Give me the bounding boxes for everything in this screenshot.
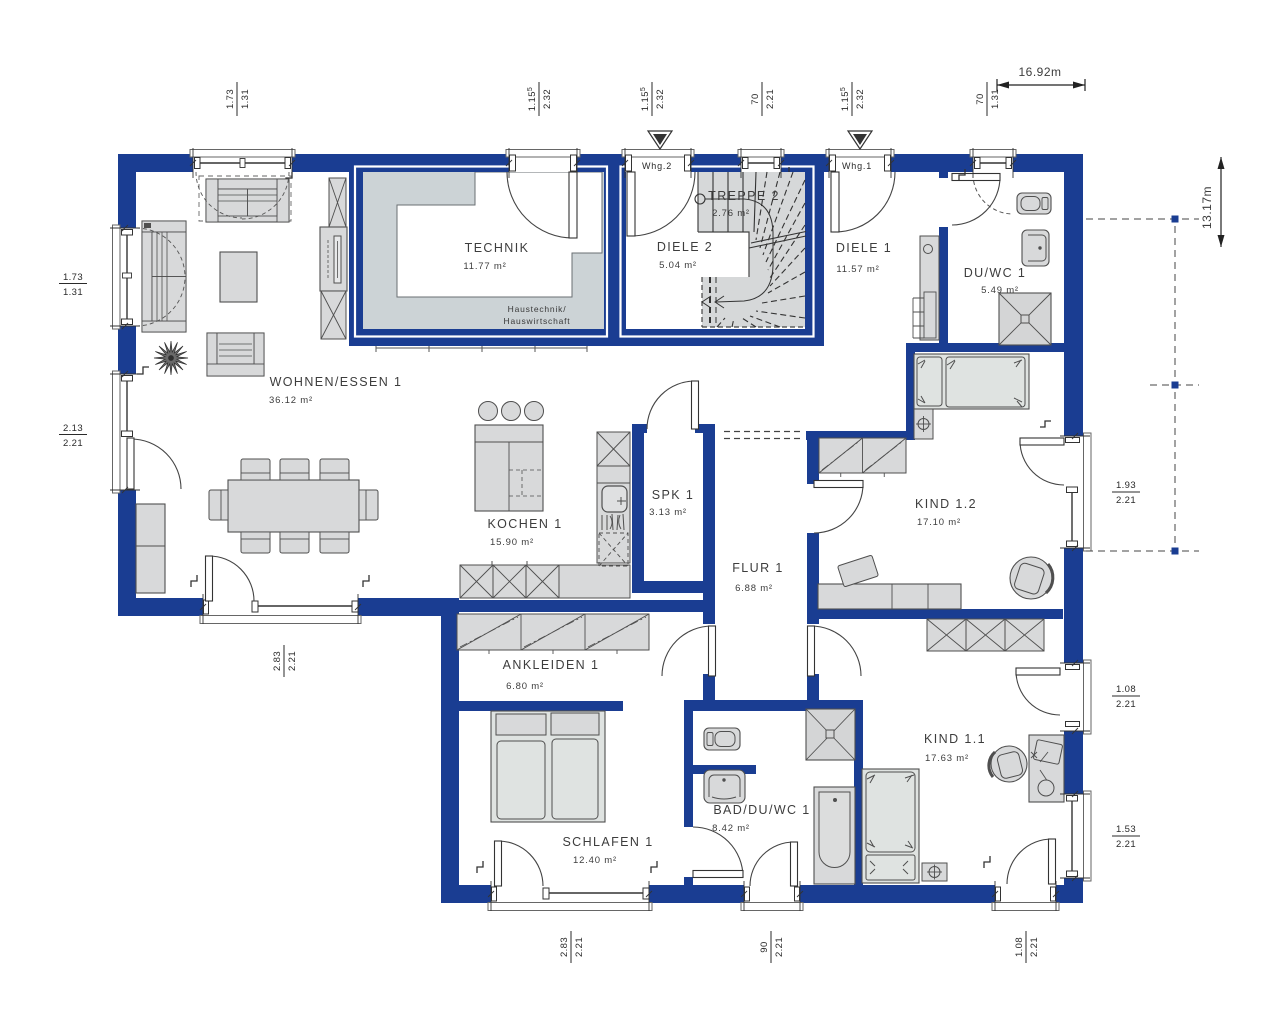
- svg-text:DIELE 1: DIELE 1: [836, 241, 892, 255]
- svg-text:1.31: 1.31: [240, 89, 251, 109]
- svg-text:11.77 m²: 11.77 m²: [463, 261, 506, 272]
- svg-text:1.73: 1.73: [63, 272, 83, 283]
- svg-text:70: 70: [975, 93, 986, 104]
- svg-text:1.53: 1.53: [1116, 824, 1136, 835]
- svg-text:2.21: 2.21: [287, 651, 298, 671]
- svg-text:2.83: 2.83: [559, 937, 570, 957]
- svg-text:SPK 1: SPK 1: [652, 488, 694, 502]
- svg-text:2.13: 2.13: [63, 423, 83, 434]
- svg-text:90: 90: [759, 941, 770, 952]
- svg-text:KIND 1.1: KIND 1.1: [924, 732, 986, 746]
- svg-text:2.21: 2.21: [1116, 495, 1136, 506]
- svg-text:2.32: 2.32: [542, 89, 553, 109]
- svg-text:TREPPE 2: TREPPE 2: [708, 189, 780, 203]
- svg-text:2.21: 2.21: [774, 937, 785, 957]
- svg-text:5.04 m²: 5.04 m²: [659, 260, 697, 271]
- svg-text:6.80 m²: 6.80 m²: [506, 681, 544, 692]
- svg-text:1.08: 1.08: [1014, 937, 1025, 957]
- svg-text:1.31: 1.31: [990, 89, 1001, 109]
- svg-text:KOCHEN 1: KOCHEN 1: [487, 517, 562, 531]
- svg-text:Haustechnik/: Haustechnik/: [508, 304, 567, 314]
- svg-text:6.88 m²: 6.88 m²: [735, 583, 773, 594]
- svg-text:DIELE 2: DIELE 2: [657, 240, 713, 254]
- svg-text:1.73: 1.73: [225, 89, 236, 109]
- svg-text:FLUR 1: FLUR 1: [732, 561, 783, 575]
- svg-text:2.76 m²: 2.76 m²: [712, 208, 750, 219]
- svg-text:1.31: 1.31: [63, 287, 83, 298]
- svg-text:ANKLEIDEN 1: ANKLEIDEN 1: [503, 658, 600, 672]
- svg-text:KIND 1.2: KIND 1.2: [915, 497, 977, 511]
- svg-text:2.21: 2.21: [1116, 699, 1136, 710]
- svg-text:2.21: 2.21: [765, 89, 776, 109]
- svg-text:Whg.1: Whg.1: [842, 161, 872, 171]
- svg-text:36.12 m²: 36.12 m²: [269, 395, 313, 406]
- svg-text:70: 70: [750, 93, 761, 104]
- svg-text:Hauswirtschaft: Hauswirtschaft: [504, 316, 571, 326]
- svg-text:13.17m: 13.17m: [1200, 186, 1214, 229]
- svg-text:WOHNEN/ESSEN 1: WOHNEN/ESSEN 1: [270, 375, 403, 389]
- svg-text:TECHNIK: TECHNIK: [465, 241, 530, 255]
- svg-text:5.49 m²: 5.49 m²: [981, 285, 1019, 296]
- svg-text:Whg.2: Whg.2: [642, 161, 672, 171]
- svg-text:2.83: 2.83: [272, 651, 283, 671]
- svg-text:3.13 m²: 3.13 m²: [649, 507, 687, 518]
- svg-text:11.57 m²: 11.57 m²: [836, 264, 879, 275]
- svg-text:2.21: 2.21: [63, 438, 83, 449]
- svg-text:1.93: 1.93: [1116, 480, 1136, 491]
- svg-text:2.21: 2.21: [1029, 937, 1040, 957]
- svg-text:1.08: 1.08: [1116, 684, 1136, 695]
- svg-text:17.10 m²: 17.10 m²: [917, 517, 961, 528]
- svg-text:2.21: 2.21: [574, 937, 585, 957]
- svg-text:15.90 m²: 15.90 m²: [490, 537, 534, 548]
- svg-text:8.42 m²: 8.42 m²: [712, 823, 750, 834]
- svg-text:2.32: 2.32: [655, 89, 666, 109]
- svg-text:DU/WC 1: DU/WC 1: [964, 266, 1027, 280]
- svg-text:17.63 m²: 17.63 m²: [925, 753, 969, 764]
- svg-text:2.32: 2.32: [855, 89, 866, 109]
- svg-text:BAD/DU/WC 1: BAD/DU/WC 1: [713, 803, 810, 817]
- svg-text:SCHLAFEN 1: SCHLAFEN 1: [562, 835, 653, 849]
- svg-text:12.40 m²: 12.40 m²: [573, 855, 617, 866]
- svg-text:2.21: 2.21: [1116, 839, 1136, 850]
- svg-text:16.92m: 16.92m: [1018, 65, 1061, 79]
